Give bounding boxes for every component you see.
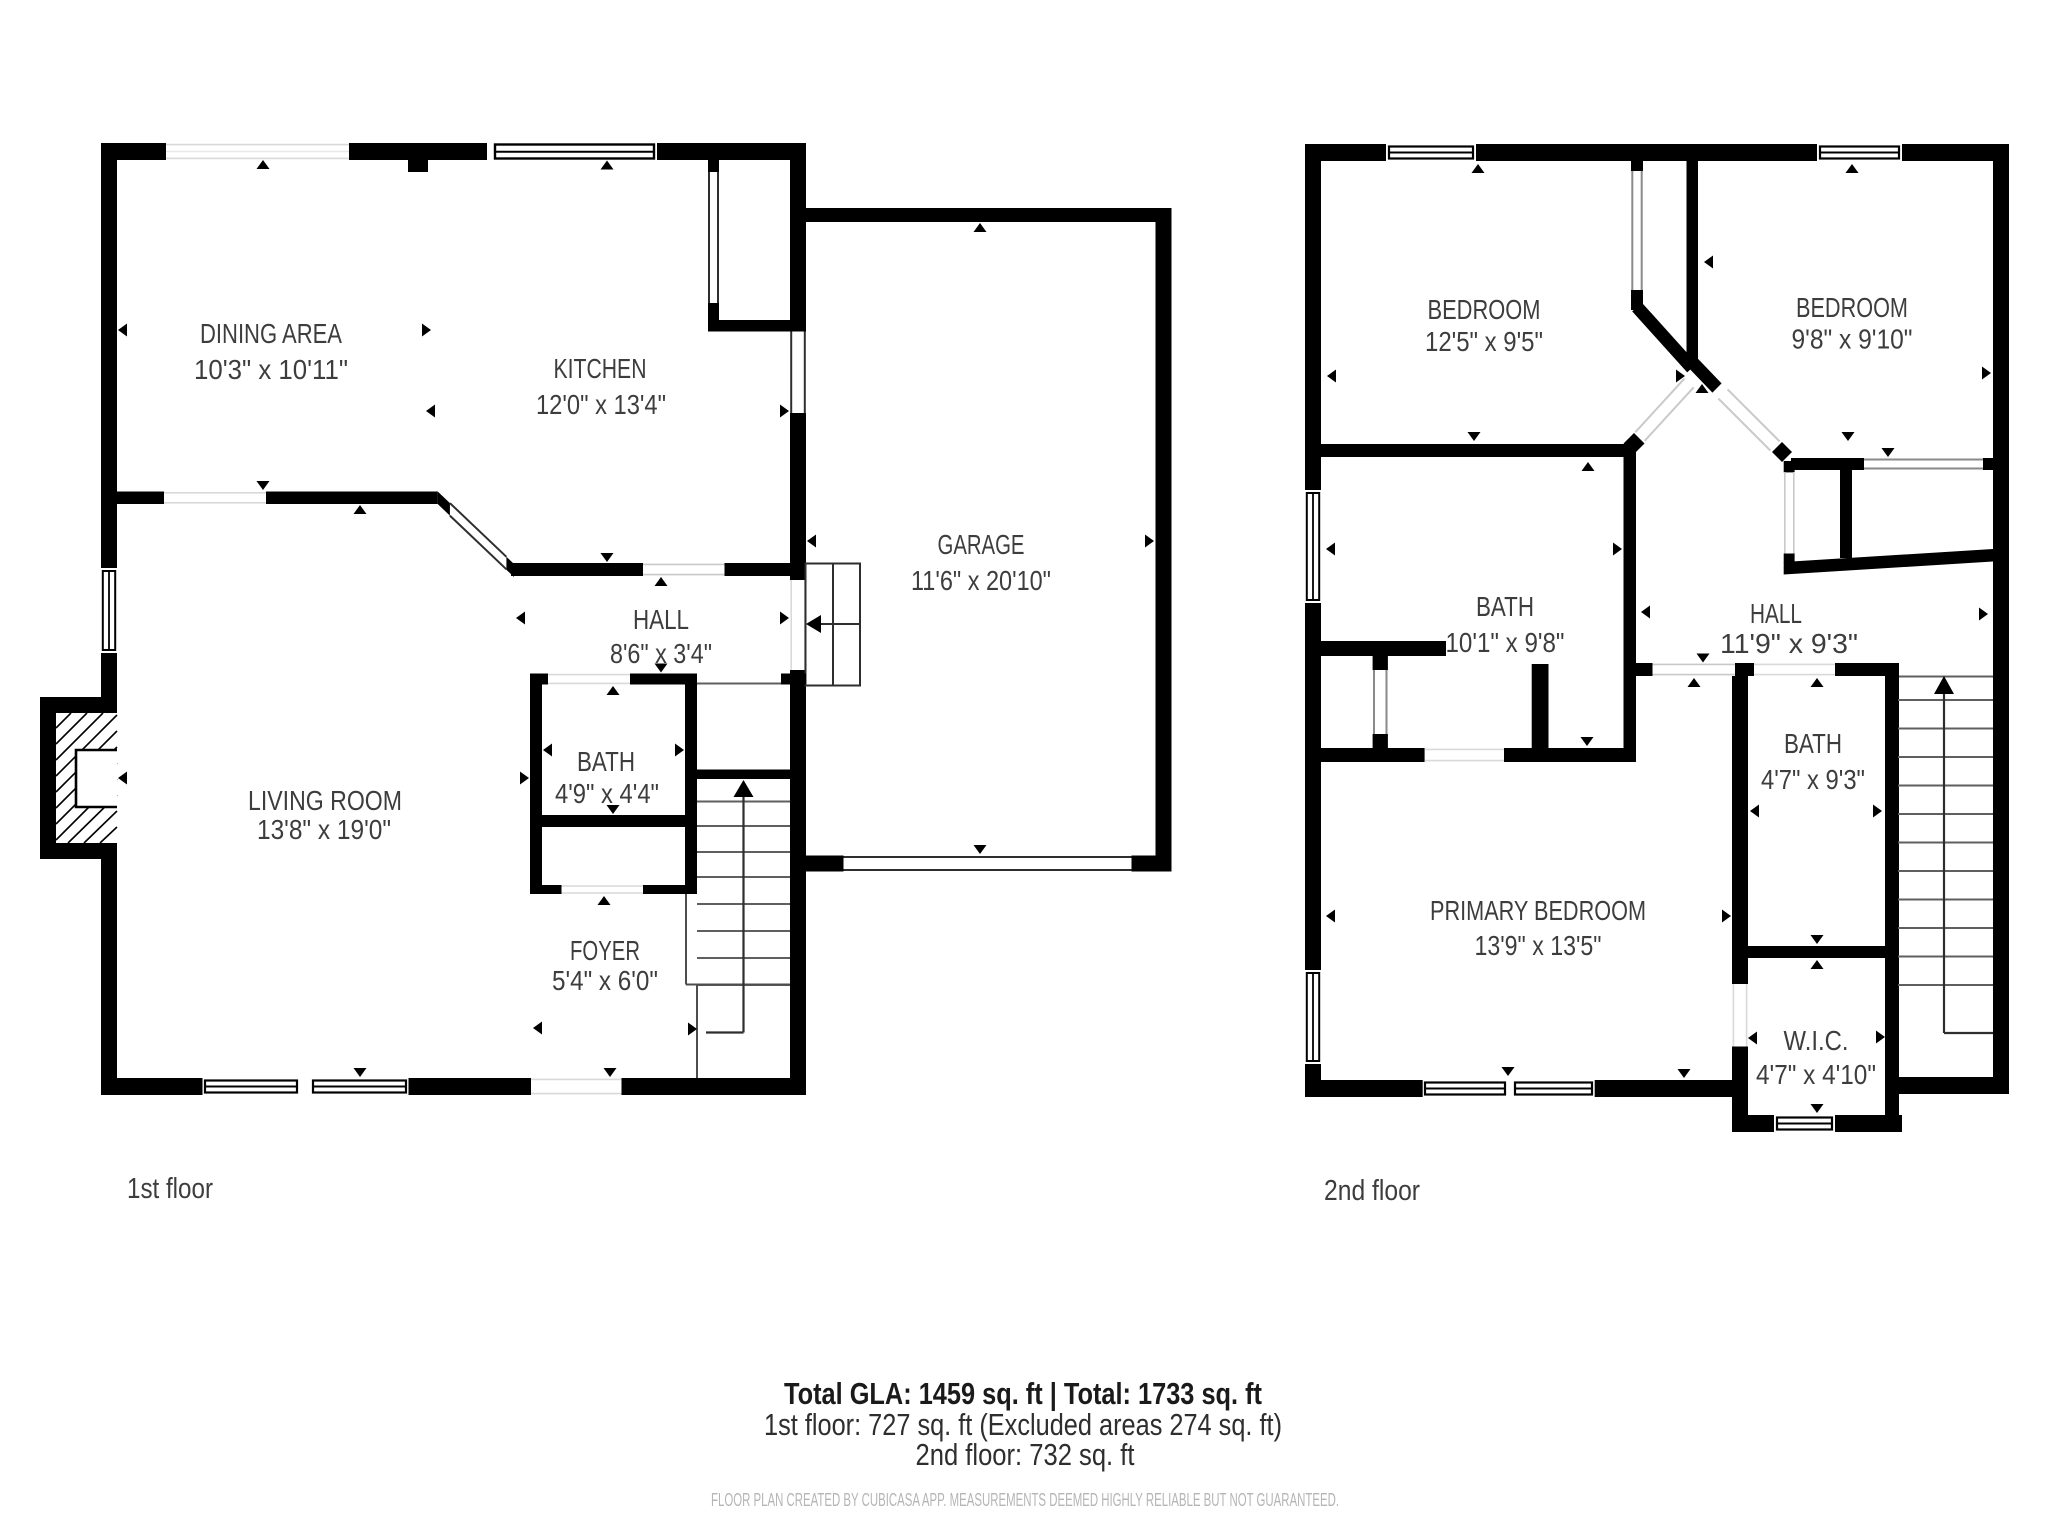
- svg-text:DINING AREA: DINING AREA: [200, 318, 342, 349]
- svg-text:FLOOR PLAN CREATED BY CUBICASA: FLOOR PLAN CREATED BY CUBICASA APP. MEAS…: [711, 1490, 1339, 1510]
- svg-text:5'4" x 6'0": 5'4" x 6'0": [552, 965, 658, 996]
- svg-text:BATH: BATH: [1476, 591, 1534, 622]
- svg-text:4'7" x 4'10": 4'7" x 4'10": [1756, 1059, 1876, 1090]
- svg-text:LIVING ROOM: LIVING ROOM: [248, 785, 402, 816]
- svg-text:10'3" x 10'11": 10'3" x 10'11": [194, 354, 348, 385]
- svg-text:13'9" x 13'5": 13'9" x 13'5": [1475, 930, 1602, 961]
- svg-text:GARAGE: GARAGE: [938, 529, 1025, 560]
- svg-text:11'9" x 9'3": 11'9" x 9'3": [1720, 628, 1858, 659]
- svg-text:11'6" x 20'10": 11'6" x 20'10": [911, 565, 1051, 596]
- svg-text:9'8" x 9'10": 9'8" x 9'10": [1792, 324, 1913, 355]
- svg-text:12'5" x 9'5": 12'5" x 9'5": [1425, 326, 1543, 357]
- svg-text:2nd floor: 2nd floor: [1324, 1175, 1420, 1207]
- svg-text:2nd floor: 732 sq. ft: 2nd floor: 732 sq. ft: [916, 1437, 1135, 1472]
- svg-text:BEDROOM: BEDROOM: [1428, 294, 1541, 325]
- svg-text:FOYER: FOYER: [570, 935, 640, 966]
- svg-text:12'0" x 13'4": 12'0" x 13'4": [536, 389, 666, 420]
- svg-text:4'7" x 9'3": 4'7" x 9'3": [1761, 764, 1865, 795]
- svg-text:PRIMARY BEDROOM: PRIMARY BEDROOM: [1430, 895, 1646, 926]
- svg-text:HALL: HALL: [633, 604, 689, 635]
- svg-text:HALL: HALL: [1750, 598, 1802, 629]
- svg-text:BATH: BATH: [577, 746, 635, 777]
- svg-text:BEDROOM: BEDROOM: [1796, 292, 1908, 323]
- svg-text:BATH: BATH: [1784, 728, 1842, 759]
- svg-text:13'8" x 19'0": 13'8" x 19'0": [257, 814, 391, 845]
- svg-text:W.I.C.: W.I.C.: [1784, 1025, 1849, 1056]
- svg-text:10'1" x 9'8": 10'1" x 9'8": [1446, 627, 1565, 658]
- svg-text:1st floor: 1st floor: [127, 1173, 213, 1205]
- svg-text:KITCHEN: KITCHEN: [554, 353, 647, 384]
- svg-text:Total GLA: 1459 sq. ft | Total: Total GLA: 1459 sq. ft | Total: 1733 sq.…: [784, 1376, 1262, 1411]
- svg-text:4'9" x 4'4": 4'9" x 4'4": [555, 778, 659, 809]
